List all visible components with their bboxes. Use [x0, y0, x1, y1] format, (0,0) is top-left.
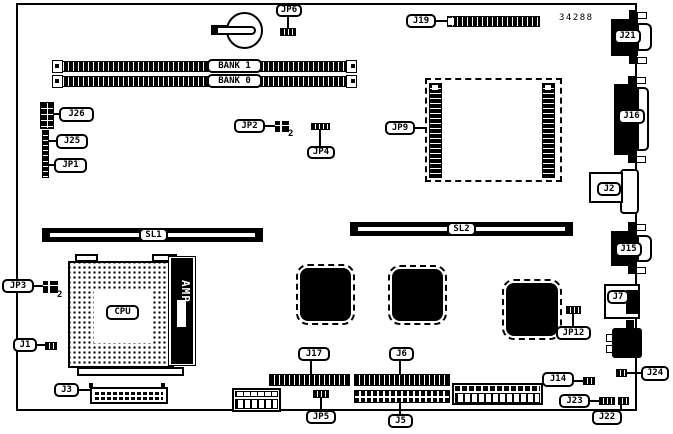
jp3-pin2-marker: 2 [57, 290, 62, 300]
stacked-port-body [612, 328, 642, 358]
amp-socket-key [177, 300, 186, 327]
j6-header [354, 374, 450, 386]
motherboard-diagram: JP6 BANK 1 BANK 0 J26 J25 JP1 2 JP2 JP4 … [0, 0, 673, 434]
j17-header [269, 374, 350, 386]
j24-callout [627, 372, 641, 374]
j21-screw-top [629, 10, 637, 19]
jp6-callout [287, 17, 289, 28]
jp9-pinstrip-right [542, 83, 555, 178]
stacked-port-tab [626, 320, 634, 328]
j24-label: J24 [641, 366, 669, 381]
j6-callout [399, 361, 401, 375]
j16-screw-top [628, 76, 635, 84]
jp6-jumper [280, 28, 296, 36]
sl1-label: SL1 [139, 228, 168, 242]
bank1-latch-left [52, 60, 63, 73]
j1-jumper [45, 342, 57, 350]
jp3-jumper [43, 281, 58, 293]
j21-screwtab-bottom [637, 57, 647, 64]
j21-screwtab-top [637, 12, 647, 19]
jp2-callout [265, 125, 275, 127]
jp4-jumper [311, 123, 330, 130]
j25-label: J25 [56, 134, 88, 149]
j23-label: J23 [559, 394, 590, 408]
jp4-label: JP4 [307, 146, 335, 159]
j14-label: J14 [542, 372, 574, 387]
j25-header [42, 130, 49, 157]
jp2-pin2-marker: 2 [288, 129, 293, 139]
jp12-callout [572, 314, 574, 326]
battery-lever [216, 26, 256, 35]
j26-header [40, 102, 54, 129]
power-connector-pins-top [235, 391, 278, 397]
part-number: 34288 [559, 13, 594, 23]
j15-screwtab-top [636, 224, 646, 231]
j19-callout [436, 20, 447, 22]
bank0-slot [53, 76, 357, 87]
j3-connector [90, 387, 168, 404]
jp2-label: JP2 [234, 119, 265, 133]
j14-jumper [583, 377, 595, 385]
j15-screwtab-bottom [636, 267, 646, 274]
jp1-header [42, 156, 49, 178]
bank0-latch-right [346, 75, 357, 88]
j17-label: J17 [298, 347, 330, 361]
j16-screw-bottom [628, 155, 635, 163]
stacked-port-pin-bottom [606, 345, 613, 353]
jp9-label: JP9 [385, 121, 415, 135]
j16-screwtab-bottom [636, 156, 646, 163]
jp9-pin1-left [432, 85, 438, 90]
jp4-callout [319, 130, 321, 147]
jp9-pin1-right [545, 85, 551, 90]
j14-callout [574, 380, 583, 382]
jp2-jumper [275, 121, 289, 132]
jp9-pinstrip-left [429, 83, 442, 178]
j7-label: J7 [607, 290, 629, 304]
jp1-label: JP1 [54, 158, 87, 173]
j15-screw-bottom [628, 266, 635, 274]
bank1-label: BANK 1 [207, 59, 262, 73]
jp9-callout [415, 127, 426, 129]
bank1-latch-right [346, 60, 357, 73]
j16-label: J16 [618, 109, 645, 124]
bank1-slot [53, 61, 357, 72]
j15-label: J15 [615, 242, 642, 257]
j22-callout [620, 405, 622, 411]
j1-label: J1 [13, 338, 37, 352]
j24-jumper [616, 369, 627, 377]
cpu-label: CPU [106, 305, 139, 320]
j2-label: J2 [597, 182, 621, 196]
bank0-label: BANK 0 [207, 74, 262, 88]
j22-label: J22 [592, 410, 622, 425]
io-connector-pins-bottom [455, 393, 540, 403]
j19-pin1-mark [448, 18, 454, 25]
j6-label: J6 [389, 347, 414, 361]
j21-label: J21 [614, 29, 641, 44]
bank0-latch-left [52, 75, 63, 88]
cpu-socket-lever [77, 367, 184, 376]
j23-callout [590, 400, 600, 402]
jp5-label: JP5 [306, 410, 336, 424]
j3-callout [79, 389, 91, 391]
j5-connector [354, 390, 450, 403]
j17-callout [310, 361, 312, 375]
power-connector-pins-bottom [235, 399, 278, 409]
chip-2 [392, 269, 443, 321]
j5-label: J5 [388, 414, 413, 428]
j26-label: J26 [59, 107, 94, 122]
j23-jumper [599, 397, 615, 405]
chip-3 [506, 283, 558, 336]
chip-1 [300, 268, 351, 321]
j16-screwtab-top [636, 77, 646, 84]
jp6-label: JP6 [276, 4, 302, 17]
stacked-port-pin-top [606, 334, 613, 342]
io-connector-pins-top [455, 386, 540, 391]
j21-screw-bottom [629, 56, 637, 64]
j15-screw-top [628, 222, 635, 231]
sl2-label: SL2 [447, 222, 476, 236]
j22-jumper [618, 397, 629, 405]
jp3-callout [34, 285, 43, 287]
jp5-jumper [313, 390, 329, 398]
jp12-label: JP12 [556, 326, 591, 340]
j1-callout [37, 344, 46, 346]
j19-label: J19 [406, 14, 436, 28]
jp3-label: JP3 [2, 279, 34, 293]
j3-label: J3 [54, 383, 79, 397]
j19-header [447, 16, 540, 27]
jp12-jumper [566, 306, 581, 314]
